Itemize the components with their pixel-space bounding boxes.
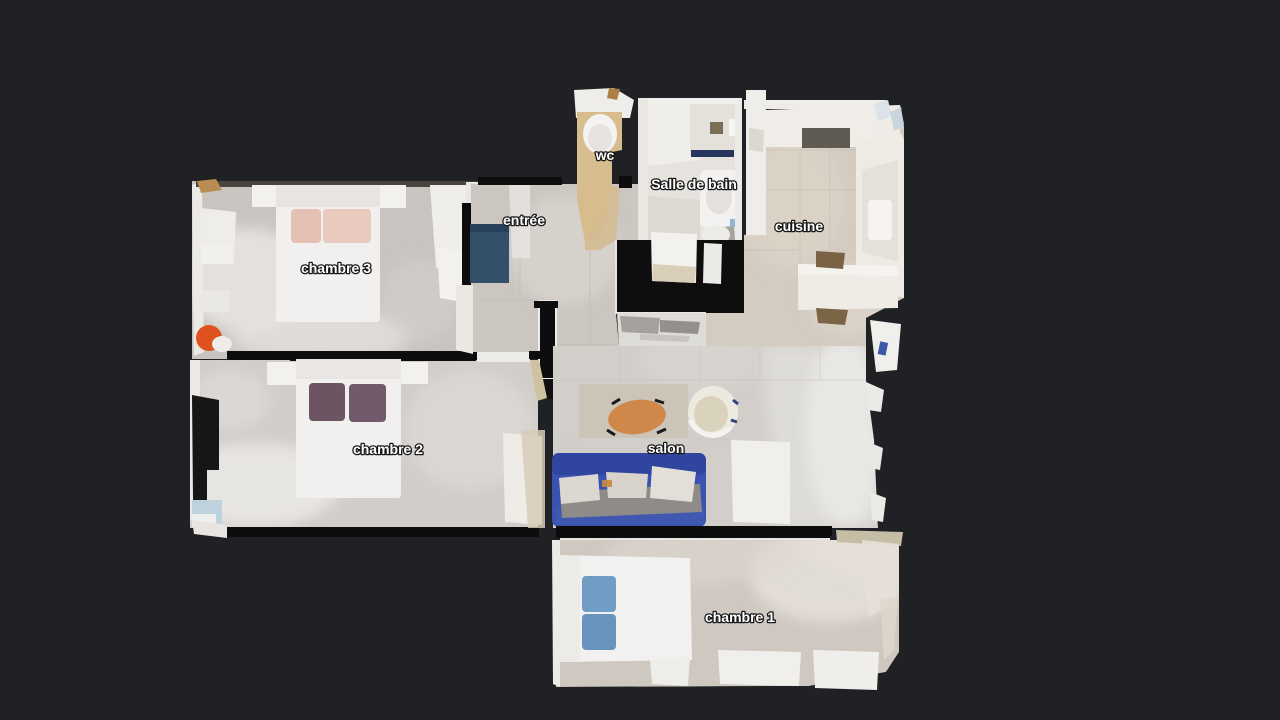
- svg-text:cuisine: cuisine: [775, 218, 823, 234]
- svg-text:wc: wc: [595, 147, 615, 163]
- svg-text:chambre 3: chambre 3: [301, 260, 371, 276]
- svg-text:chambre 2: chambre 2: [353, 441, 423, 457]
- svg-text:chambre 1: chambre 1: [705, 609, 775, 625]
- svg-text:Salle de bain: Salle de bain: [651, 176, 737, 192]
- svg-text:entrée: entrée: [503, 212, 545, 228]
- svg-text:salon: salon: [648, 440, 685, 456]
